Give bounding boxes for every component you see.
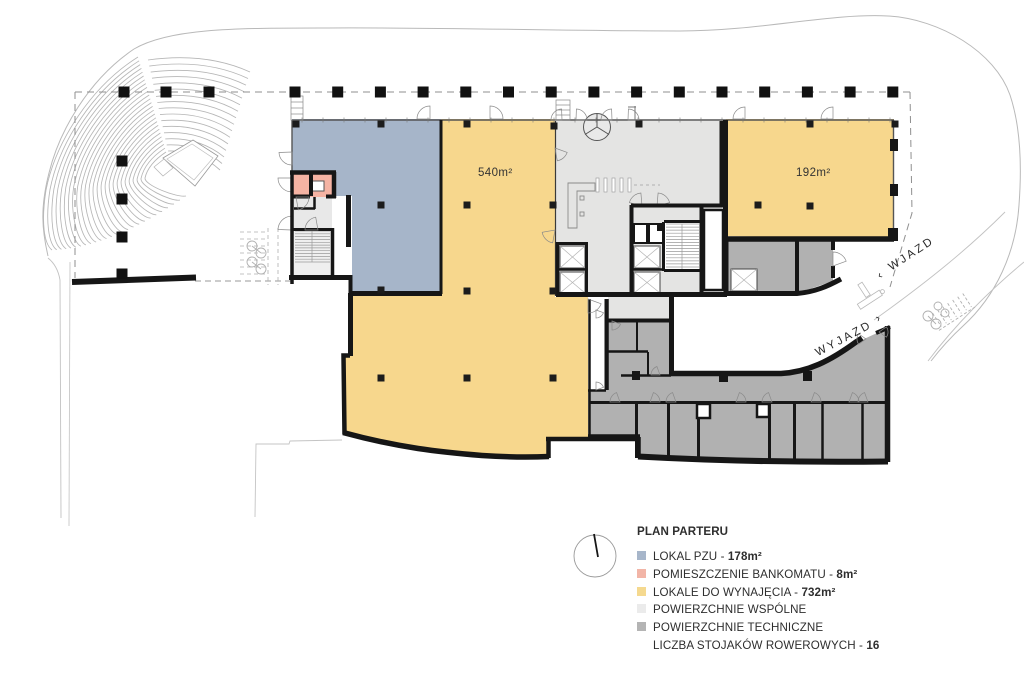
svg-text:POWIERZCHNIE TECHNICZNE: POWIERZCHNIE TECHNICZNE <box>653 621 823 634</box>
svg-text:LOKAL PZU - 178m²: LOKAL PZU - 178m² <box>653 550 762 563</box>
svg-text:540m²: 540m² <box>478 167 513 179</box>
svg-text:LICZBA STOJAKÓW ROWEROWYCH - 1: LICZBA STOJAKÓW ROWEROWYCH - 16 <box>653 639 880 652</box>
svg-text:POMIESZCZENIE BANKOMATU - 8m²: POMIESZCZENIE BANKOMATU - 8m² <box>653 568 857 581</box>
svg-text:POWIERZCHNIE WSPÓLNE: POWIERZCHNIE WSPÓLNE <box>653 603 807 616</box>
svg-text:192m²: 192m² <box>796 167 831 179</box>
svg-text:PLAN PARTERU: PLAN PARTERU <box>637 525 728 538</box>
svg-text:LOKALE DO WYNAJĘCIA - 732m²: LOKALE DO WYNAJĘCIA - 732m² <box>653 586 836 599</box>
